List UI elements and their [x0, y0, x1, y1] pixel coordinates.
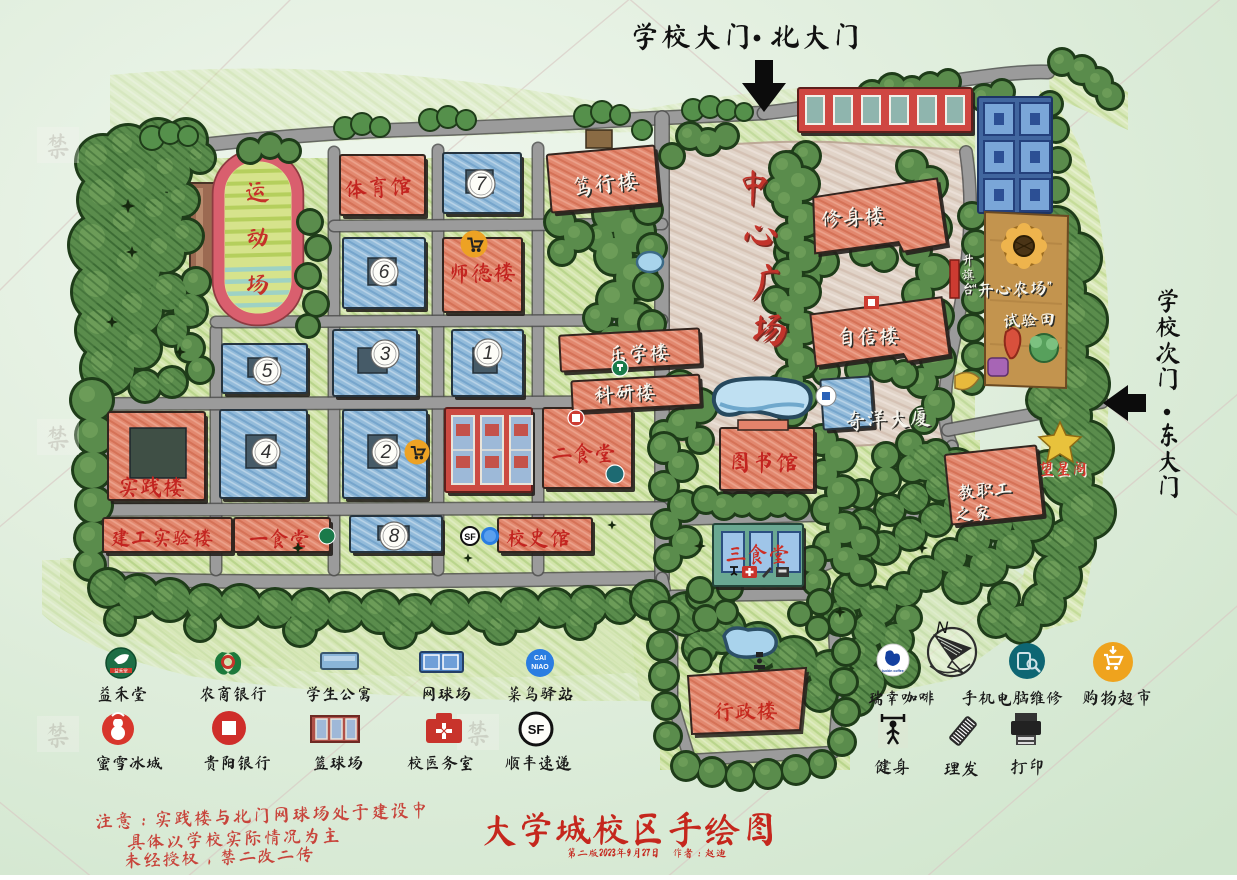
svg-text:SF: SF	[464, 532, 476, 542]
svg-text:2: 2	[380, 442, 392, 463]
svg-text:1: 1	[483, 343, 494, 364]
svg-text:SF: SF	[528, 722, 545, 737]
svg-text:益禾堂: 益禾堂	[114, 668, 128, 675]
svg-text:7: 7	[476, 174, 488, 195]
svg-text:N: N	[936, 618, 949, 637]
svg-text:luckin coffee: luckin coffee	[882, 669, 903, 673]
svg-text:NIAO: NIAO	[531, 664, 549, 671]
svg-text:4: 4	[261, 442, 272, 463]
svg-text:6: 6	[379, 262, 390, 283]
svg-text:5: 5	[262, 361, 273, 382]
svg-text:CAI: CAI	[534, 655, 546, 662]
svg-text:3: 3	[380, 344, 391, 365]
svg-text:8: 8	[389, 526, 400, 547]
